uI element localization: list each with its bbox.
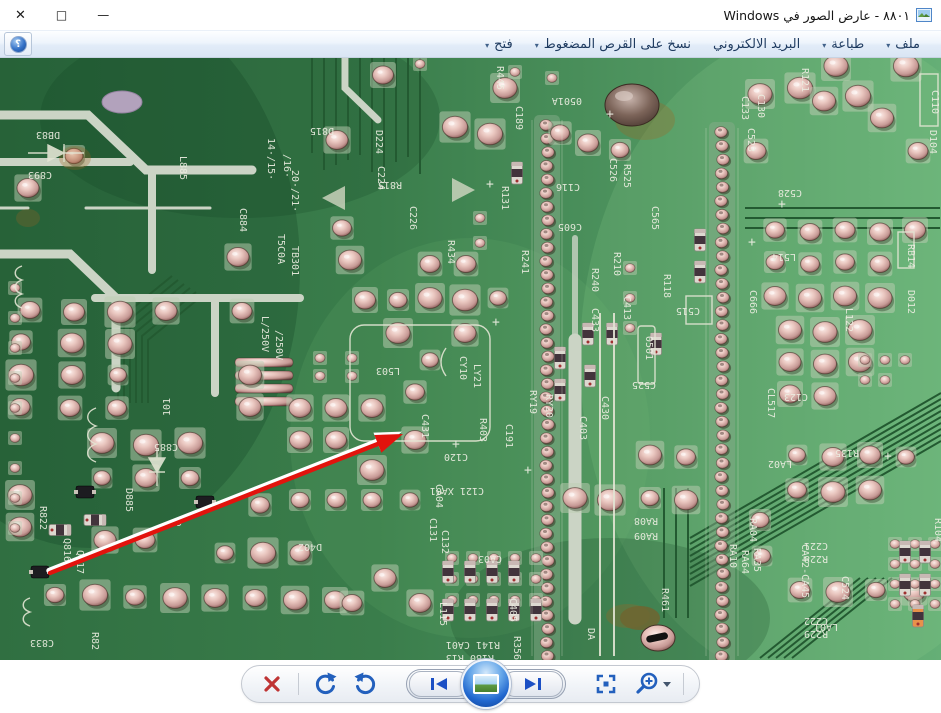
svg-text:R445: R445 [494,66,505,90]
svg-text:C224: C224 [375,166,386,190]
svg-text:C431: C431 [419,414,430,438]
svg-text:LA02: LA02 [768,458,792,469]
svg-text:0501: 0501 [643,336,654,360]
minimize-button[interactable]: — [97,9,108,21]
svg-text:D224: D224 [373,130,384,154]
dropdown-arrow-icon: ▾ [485,41,489,50]
svg-text:R241: R241 [519,250,530,274]
svg-text:C123: C123 [784,391,808,402]
svg-text:RA08: RA08 [634,515,658,526]
svg-text:C189: C189 [513,106,524,130]
svg-text:R229: R229 [804,628,828,639]
toolbar-item-open[interactable]: فتح▾ [474,33,524,56]
svg-text:+: + [486,177,494,192]
slideshow-icon [473,674,499,694]
svg-text:CY10: CY10 [457,356,468,380]
svg-text:R141 CA01: R141 CA01 [446,639,500,650]
svg-text:C833: C833 [30,637,54,648]
photo-viewer-window: ✕ □ — ٨٨٠١ - عارض الصور في Windows ؟ ملف… [0,0,941,713]
svg-text:CA03: CA03 [478,553,502,564]
svg-text:RA35: RA35 [751,548,762,572]
toolbar-item-label: نسخ على القرص المضغوط [544,37,691,52]
help-button[interactable]: ؟ [4,32,32,56]
zoom-icon [634,671,660,697]
svg-text:R434: R434 [445,240,456,264]
svg-text:/250V: /250V [273,330,284,360]
svg-text:R525: R525 [621,164,632,188]
svg-text:C515: C515 [676,305,700,316]
svg-text:DA: DA [585,628,596,640]
svg-text:RB14: RB14 [905,244,916,268]
previous-button[interactable] [409,671,469,697]
skip-next-icon [521,673,545,695]
toolbar-item-label: البريد الالكتروني [713,37,800,52]
svg-text:RY20: RY20 [543,394,554,418]
svg-text:C430: C430 [599,396,610,420]
svg-text:C191: C191 [503,424,514,448]
svg-text:C433: C433 [589,308,600,332]
svg-text:C885: C885 [154,441,178,452]
svg-text:R104: R104 [932,518,941,542]
toolbar-divider [298,673,299,695]
delete-icon [260,672,284,696]
svg-text:C110: C110 [929,90,940,114]
actual-size-icon [594,672,618,696]
svg-text:R118: R118 [661,274,672,298]
svg-text:CL517: CL517 [765,388,776,418]
bottom-bar [0,660,941,713]
svg-text:+: + [884,449,892,464]
help-icon: ؟ [10,36,27,53]
delete-button[interactable] [257,669,287,699]
toolbar-item-email[interactable]: البريد الالكتروني [702,33,811,56]
close-button[interactable]: ✕ [15,9,26,22]
svg-text:L885: L885 [177,156,188,180]
svg-text:C893: C893 [28,169,52,180]
toolbar-item-print[interactable]: طباعة▾ [811,33,875,56]
svg-text:CA42-CA45: CA42-CA45 [799,544,810,598]
svg-text:RA09: RA09 [634,530,658,541]
rotate-clockwise-icon [312,671,338,697]
svg-text:+: + [452,437,460,452]
svg-text:C565: C565 [649,206,660,230]
svg-text:+: + [606,107,614,122]
window-title: ٨٨٠١ - عارض الصور في Windows [724,8,910,23]
svg-text:+: + [778,197,786,212]
svg-text:R822: R822 [37,506,48,530]
svg-text:RA04: RA04 [747,518,758,542]
menu-items: ملف▾طباعة▾البريد الالكترونينسخ على القرص… [474,33,941,56]
svg-text:L122: L122 [843,308,854,332]
title-group: ٨٨٠١ - عارض الصور في Windows [724,8,941,23]
svg-text:C120: C120 [444,451,468,462]
svg-text:20·/21·: 20·/21· [289,170,300,212]
svg-text:R403: R403 [477,418,488,442]
maximize-button[interactable]: □ [56,9,67,21]
svg-text:C130: C130 [755,94,766,118]
zoom-dropdown-arrow[interactable] [663,682,671,687]
svg-text:T5C0A: T5C0A [275,234,286,264]
svg-text:D885: D885 [123,488,134,512]
svg-text:+: + [748,235,756,250]
svg-text:R210: R210 [611,252,622,276]
toolbar-item-file[interactable]: ملف▾ [875,33,931,56]
actual-size-button[interactable] [591,669,621,699]
toolbar-divider [683,673,684,695]
svg-text:TB301: TB301 [289,246,300,276]
pcb-oval-pad [102,91,142,113]
rotate-counterclockwise-icon [353,671,379,697]
dropdown-arrow-icon: ▾ [886,41,890,50]
svg-text:R135: R135 [835,447,859,458]
image-viewer: R445D815R815D224C224C226R131R434R241C189… [0,58,941,660]
svg-text:C116: C116 [556,181,580,192]
svg-text:R121: R121 [799,68,810,92]
photo-circuit-board: R445D815R815D224C224C226R131R434R241C189… [0,58,941,660]
svg-text:C524: C524 [839,576,850,600]
svg-text:D012: D012 [905,290,916,314]
skip-previous-icon [427,673,451,695]
svg-text:D815: D815 [310,125,334,136]
svg-text:D402: D402 [298,541,322,552]
toolbar-item-label: ملف [895,37,920,52]
svg-text:14·/15·: 14·/15· [265,138,276,180]
svg-text:C132: C132 [439,530,450,554]
svg-text:C666: C666 [747,290,758,314]
svg-text:L115: L115 [437,602,448,626]
dropdown-arrow-icon: ▾ [822,41,826,50]
navigation-group [406,669,566,699]
svg-text:C131: C131 [427,518,438,542]
svg-text:C133: C133 [739,96,750,120]
svg-text:C403: C403 [577,416,588,440]
zoom-button[interactable] [632,669,672,699]
svg-text:R356: R356 [511,636,522,660]
title-bar: ✕ □ — ٨٨٠١ - عارض الصور في Windows [0,0,941,30]
slideshow-button[interactable] [461,659,511,709]
svg-text:R240: R240 [589,268,600,292]
svg-text:+: + [524,463,532,478]
svg-text:C605: C605 [558,221,582,232]
svg-text:C525: C525 [632,379,656,390]
svg-text:C413: C413 [621,296,632,320]
svg-text:C226: C226 [407,206,418,230]
rotate-clockwise-button[interactable] [310,669,340,699]
svg-text:D104: D104 [927,130,938,154]
next-button[interactable] [503,671,563,697]
svg-text:L503: L503 [376,365,400,376]
svg-text:R228: R228 [804,553,828,564]
svg-text:0501A: 0501A [552,95,582,106]
dropdown-arrow-icon: ▾ [535,41,539,50]
svg-text:R82: R82 [89,632,100,650]
rotate-counterclockwise-button[interactable] [351,669,381,699]
svg-text:C405: C405 [507,598,518,622]
command-toolbar: ؟ ملف▾طباعة▾البريد الالكترونينسخ على الق… [0,30,941,58]
svg-text:R131: R131 [499,186,510,210]
playback-toolbar [241,665,700,703]
toolbar-item-label: طباعة [831,37,864,52]
svg-text:L/250V: L/250V [259,316,270,352]
svg-text:C222: C222 [804,615,828,626]
svg-text:RA64: RA64 [739,550,750,574]
svg-text:C523: C523 [745,128,756,152]
svg-text:L514: L514 [772,251,796,262]
svg-text:C121 XA01: C121 XA01 [430,485,484,496]
svg-text:RA10: RA10 [727,544,738,568]
svg-text:+: + [492,315,500,330]
svg-text:C221: C221 [804,540,828,551]
svg-text:101: 101 [162,398,173,416]
svg-text:C526: C526 [607,158,618,182]
svg-text:DB83: DB83 [36,129,60,140]
toolbar-item-label: فتح [494,37,513,52]
app-icon [916,8,932,22]
svg-text:LY21: LY21 [471,364,482,388]
svg-text:R461: R461 [659,588,670,612]
svg-text:C884: C884 [237,208,248,232]
svg-text:Q816: Q816 [61,538,72,562]
svg-text:RY19: RY19 [527,390,538,414]
window-controls: ✕ □ — [0,9,108,22]
toolbar-item-burn[interactable]: نسخ على القرص المضغوط▾ [524,33,702,56]
